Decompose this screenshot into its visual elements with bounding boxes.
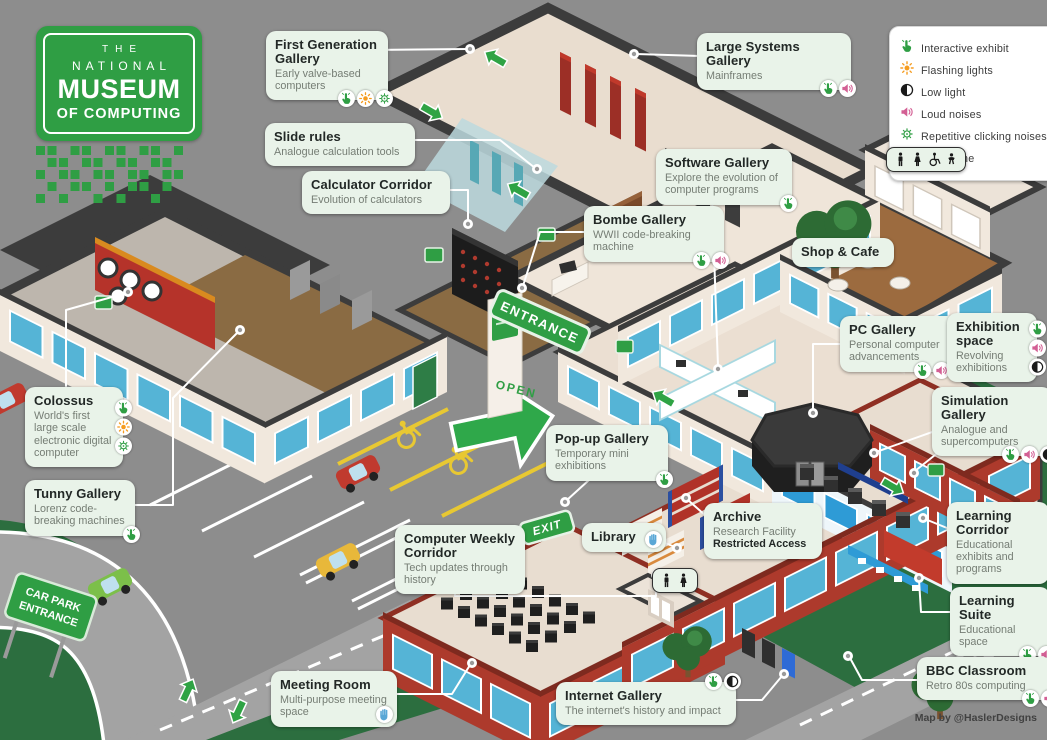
lowlight-icon — [724, 673, 741, 690]
callout-computer-weekly-corridor: Computer Weekly Corridor Tech updates th… — [395, 525, 525, 594]
interactive-icon — [705, 673, 722, 690]
callout-calculator-corridor: Calculator Corridor Evolution of calcula… — [302, 171, 450, 214]
interactive-icon — [1029, 320, 1046, 337]
callout-toilets-main — [886, 147, 966, 172]
legend-item-loud: Loud noises — [900, 105, 1047, 124]
museum-map: OPEN ENTRANCE EXIT CAR PARK ENTRANCE — [0, 0, 1047, 740]
callout-pop-up-gallery: Pop-up Gallery Temporary mini exhibition… — [546, 425, 668, 481]
baby-icon — [944, 152, 959, 167]
legend-item-clicking: Repetitive clicking noises — [900, 127, 1047, 146]
man-icon — [893, 152, 908, 167]
callout-library: Library — [582, 523, 666, 552]
interactive-icon — [1002, 446, 1019, 463]
callout-large-systems-gallery: Large Systems Gallery Mainframes — [697, 33, 851, 90]
callout-archive: Archive Research Facility Restricted Acc… — [704, 503, 822, 559]
interactive-icon — [656, 471, 673, 488]
lowlight-icon — [900, 83, 914, 97]
logo-pixel-mosaic — [36, 146, 188, 206]
clicking-icon — [115, 438, 132, 455]
interactive-icon — [123, 526, 140, 543]
callout-title: First Generation Gallery — [275, 38, 379, 66]
legend-item-interactive: Interactive exhibit — [900, 39, 1047, 58]
callout-learning-corridor: Learning Corridor Educational exhibits a… — [947, 502, 1047, 584]
callout-meeting-room: Meeting Room Multi-purpose meeting space — [271, 671, 397, 727]
clicking-icon — [376, 90, 393, 107]
callout-subtitle: Early valve-based computers — [275, 68, 379, 93]
flashing-icon — [357, 90, 374, 107]
callout-learning-suite: Learning Suite Educational space — [950, 587, 1047, 656]
callout-bombe-gallery: Bombe Gallery WWII code-breaking machine — [584, 206, 724, 262]
callout-pc-gallery: PC Gallery Personal computer advancement… — [840, 316, 964, 372]
callout-exhibition-space: Exhibition space Revolving exhibitions — [947, 313, 1037, 382]
callout-shop-cafe: Shop & Cafe — [792, 238, 894, 267]
callout-toilets-lower — [652, 568, 698, 593]
callout-simulation-gallery: Simulation Gallery Analogue and supercom… — [932, 387, 1047, 456]
lowlight-icon — [1029, 358, 1046, 375]
flashing-icon — [115, 419, 132, 436]
callout-first-generation-gallery: First Generation Gallery Early valve-bas… — [266, 31, 388, 100]
museum-logo: THE NATIONAL MUSEUM OF COMPUTING — [36, 26, 202, 141]
logo-line-the: THE — [49, 44, 189, 55]
callout-slide-rules: Slide rules Analogue calculation tools — [265, 123, 415, 166]
callout-software-gallery: Software Gallery Explore the evolution o… — [656, 149, 792, 205]
woman-icon — [910, 152, 925, 167]
interactive-icon — [1022, 690, 1039, 707]
interactive-icon — [900, 39, 914, 53]
calm-icon — [645, 531, 662, 548]
woman-icon — [676, 573, 691, 588]
loud-icon — [1021, 446, 1038, 463]
loud-icon — [839, 80, 856, 97]
interactive-icon — [820, 80, 837, 97]
lowlight-icon — [1040, 446, 1047, 463]
callout-tunny-gallery: Tunny Gallery Lorenz code-breaking machi… — [25, 480, 135, 536]
legend-item-lowlight: Low light — [900, 83, 1047, 102]
calm-icon — [376, 706, 393, 723]
callout-note: Restricted Access — [713, 538, 813, 550]
loud-icon — [1029, 339, 1046, 356]
clicking-icon — [900, 127, 914, 141]
logo-line-of-computing: OF COMPUTING — [49, 106, 189, 122]
callout-colossus: Colossus World's first large scale elect… — [25, 387, 123, 467]
wheelchair-icon — [927, 152, 942, 167]
interactive-icon — [693, 252, 710, 269]
interactive-icon — [914, 362, 931, 379]
loud-icon — [900, 105, 914, 119]
interactive-icon — [338, 90, 355, 107]
callout-bbc-classroom: BBC Classroom Retro 80s computing — [917, 657, 1047, 700]
interactive-icon — [780, 195, 797, 212]
loud-icon — [712, 252, 729, 269]
loud-icon — [1041, 690, 1047, 707]
interactive-icon — [115, 400, 132, 417]
logo-line-national: NATIONAL — [49, 59, 189, 73]
legend-item-flashing: Flashing lights — [900, 61, 1047, 80]
flashing-icon — [900, 61, 914, 75]
man-icon — [659, 573, 674, 588]
map-credit: Map by @HaslerDesigns — [915, 712, 1037, 724]
callout-internet-gallery: Internet Gallery The internet's history … — [556, 682, 736, 725]
logo-line-museum: MUSEUM — [49, 74, 189, 105]
